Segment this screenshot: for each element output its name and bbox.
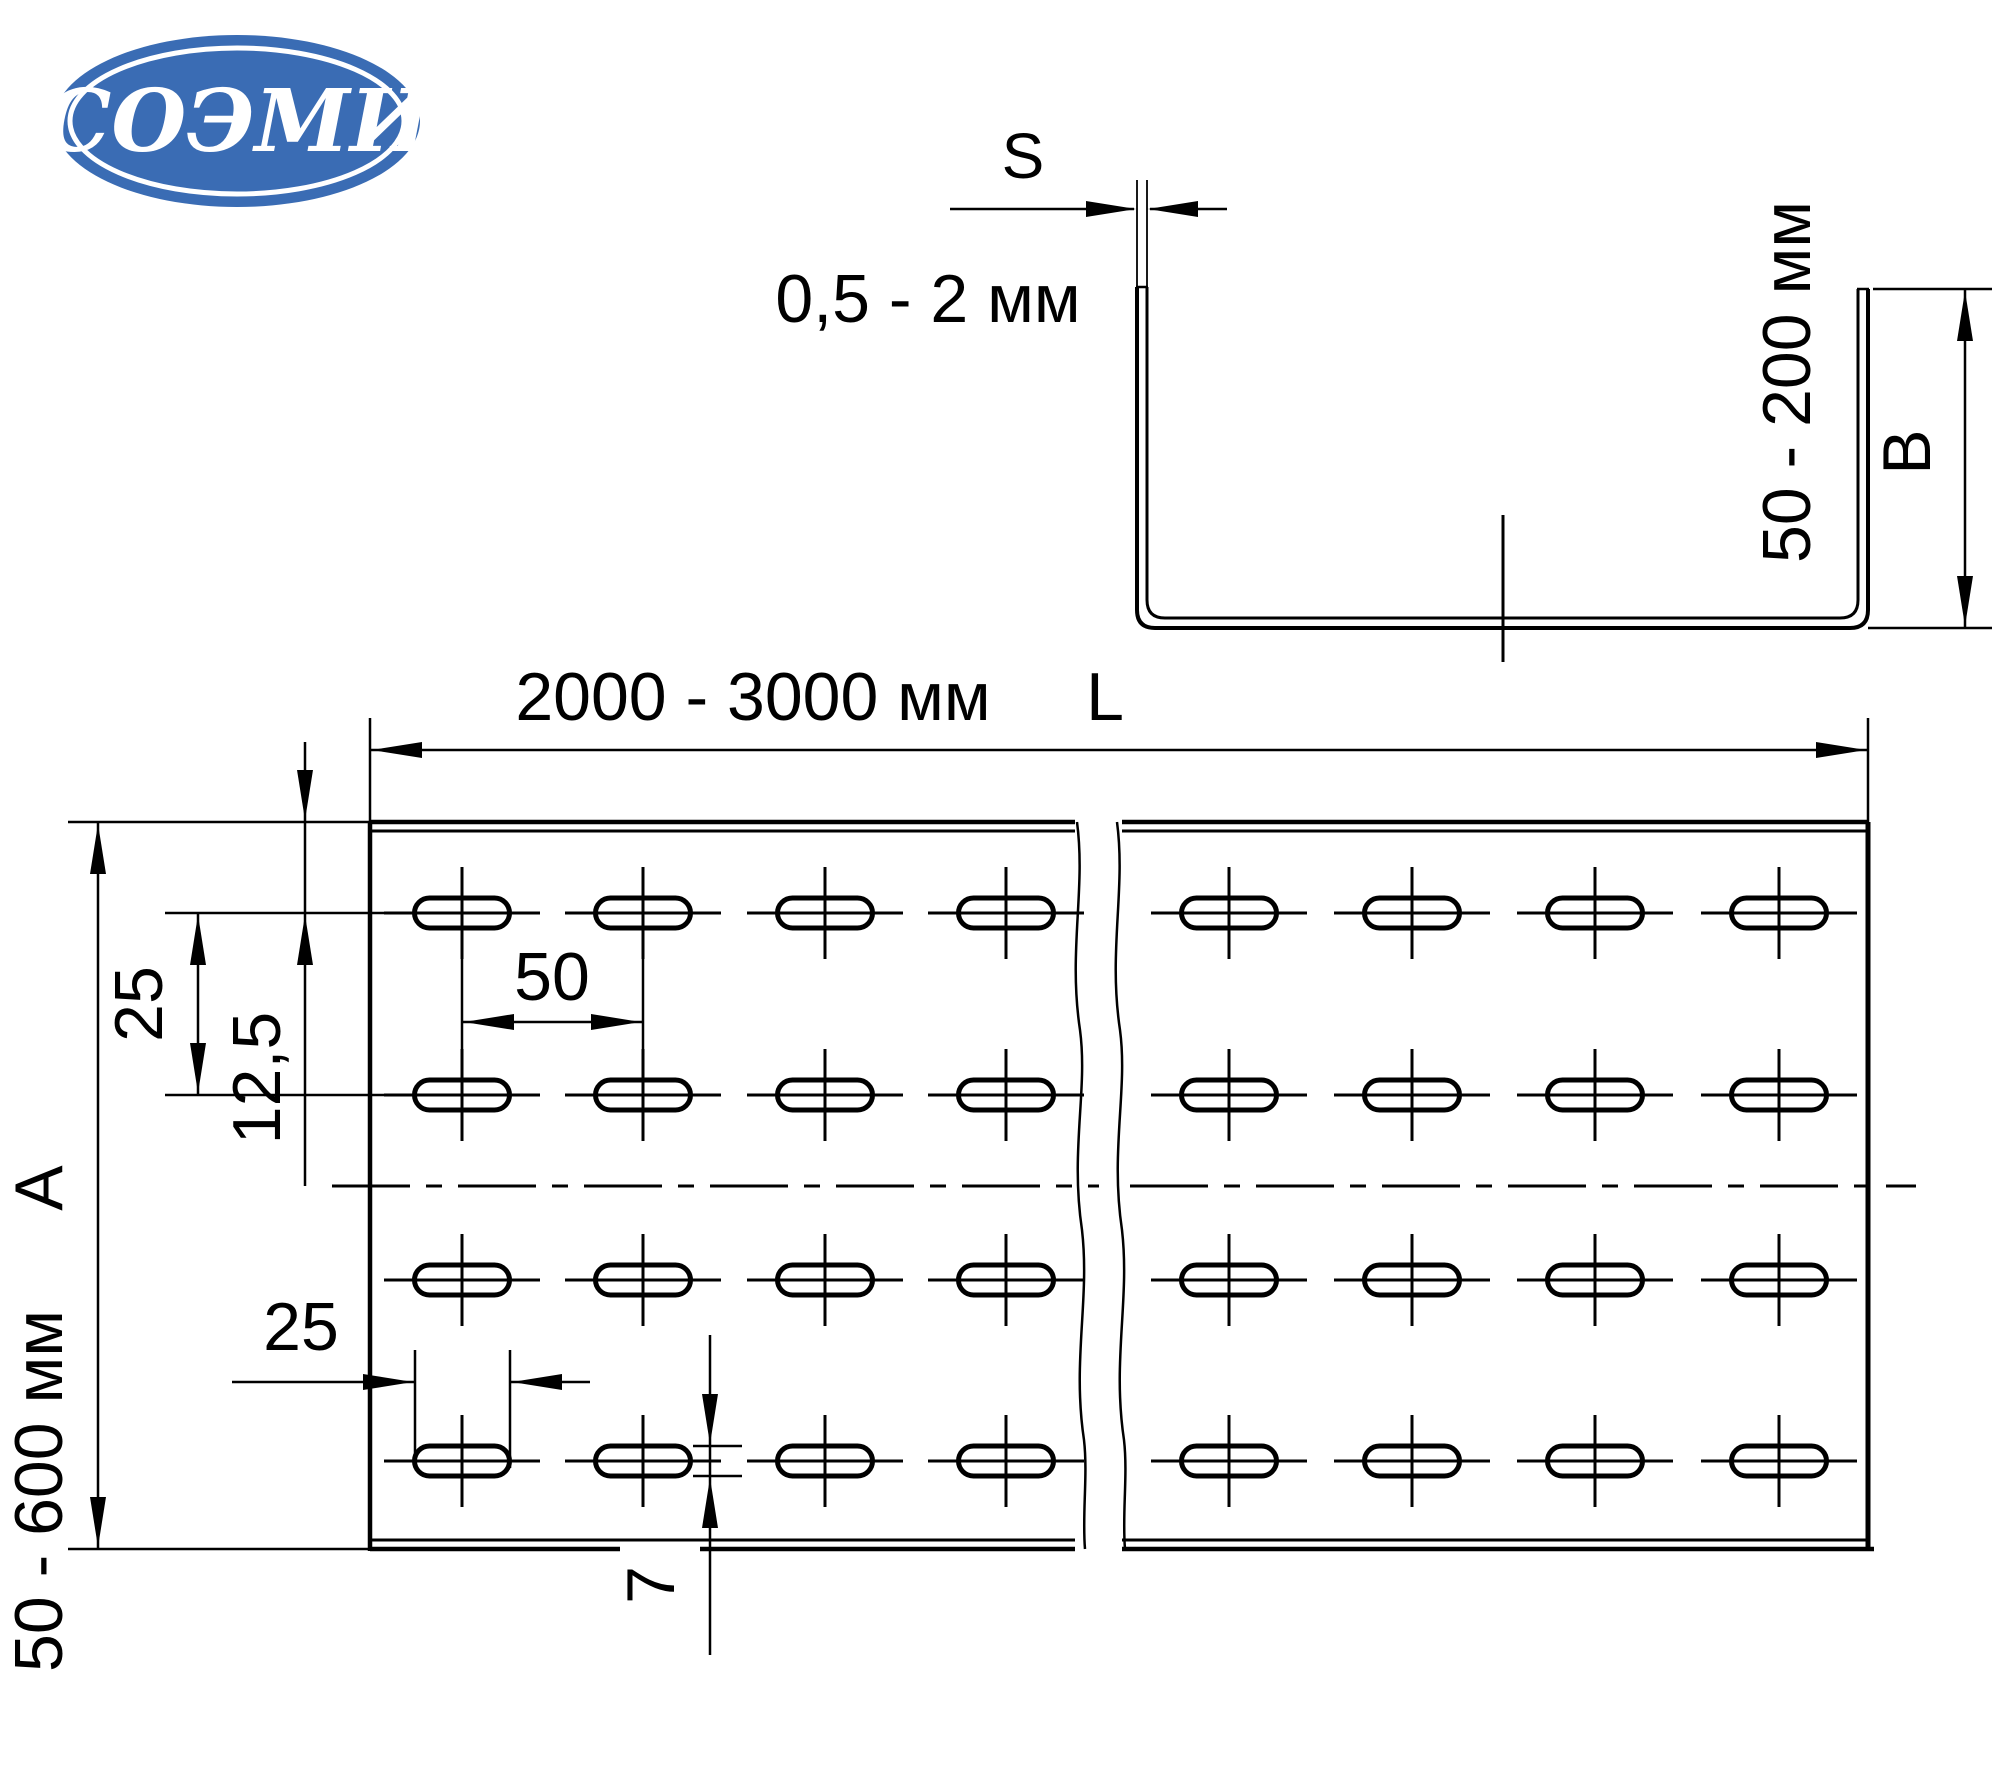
length-range-label: 2000 - 3000 мм bbox=[515, 659, 990, 735]
arrowhead-up-icon bbox=[1957, 291, 1973, 341]
slot bbox=[1334, 1234, 1490, 1326]
slot bbox=[1334, 867, 1490, 959]
slot bbox=[747, 1415, 903, 1507]
plan-view bbox=[68, 718, 1916, 1655]
slot-height-label: 7 bbox=[613, 1566, 689, 1604]
slot bbox=[1151, 1415, 1307, 1507]
slot bbox=[1151, 867, 1307, 959]
break-line-right bbox=[1116, 822, 1126, 1549]
width-range-label: 50 - 600 мм bbox=[1, 1310, 77, 1672]
slot bbox=[1151, 1049, 1307, 1141]
arrowhead-down-icon bbox=[90, 1497, 106, 1547]
slot bbox=[1334, 1415, 1490, 1507]
slot bbox=[747, 867, 903, 959]
length-letter-label: L bbox=[1086, 659, 1124, 735]
slot bbox=[1517, 1415, 1673, 1507]
arrowhead-down-icon bbox=[190, 1043, 206, 1093]
slot bbox=[1334, 1049, 1490, 1141]
slot bbox=[1151, 1234, 1307, 1326]
slot bbox=[928, 867, 1084, 959]
column-pitch-label: 50 bbox=[514, 939, 590, 1015]
break-line-left bbox=[1076, 822, 1086, 1549]
arrowhead-up-icon bbox=[90, 824, 106, 874]
arrowhead-left-icon bbox=[1148, 201, 1198, 217]
slot bbox=[1517, 1049, 1673, 1141]
arrowhead-up-icon bbox=[190, 915, 206, 965]
row-pitch-label: 25 bbox=[101, 966, 177, 1042]
wall-thickness-range: 0,5 - 2 мм bbox=[775, 261, 1080, 337]
slot bbox=[565, 1415, 721, 1507]
slot bbox=[1701, 1049, 1857, 1141]
company-logo: СОЭМИ bbox=[43, 35, 434, 207]
arrowhead-left-icon bbox=[372, 742, 422, 758]
profile-height-letter: B bbox=[1869, 429, 1945, 474]
arrowhead-left-icon bbox=[464, 1014, 514, 1030]
slot bbox=[747, 1234, 903, 1326]
slot bbox=[1517, 1234, 1673, 1326]
slot bbox=[928, 1415, 1084, 1507]
logo-text: СОЭМИ bbox=[43, 71, 434, 172]
arrowhead-up-icon bbox=[702, 1478, 718, 1528]
dimension-edge-offset bbox=[297, 742, 313, 1186]
slot bbox=[1517, 867, 1673, 959]
width-letter-label: A bbox=[1, 1165, 77, 1211]
profile-height-range: 50 - 200 мм bbox=[1749, 201, 1825, 563]
arrowhead-up-icon bbox=[297, 915, 313, 965]
slot bbox=[384, 1234, 540, 1326]
technical-drawing: СОЭМИ S 0,5 - 2 мм 50 - 200 м bbox=[0, 0, 2000, 1771]
slot bbox=[384, 1415, 540, 1507]
slot bbox=[565, 1234, 721, 1326]
slot bbox=[928, 1049, 1084, 1141]
arrowhead-left-icon bbox=[512, 1374, 562, 1390]
slot bbox=[1701, 1415, 1857, 1507]
arrowhead-right-icon bbox=[591, 1014, 641, 1030]
dimension-width bbox=[68, 822, 370, 1549]
slot bbox=[928, 1234, 1084, 1326]
drawing-page: СОЭМИ S 0,5 - 2 мм 50 - 200 м bbox=[0, 0, 2000, 1771]
dimension-slot-length bbox=[232, 1350, 590, 1468]
slot-length-label: 25 bbox=[263, 1289, 339, 1365]
arrowhead-right-icon bbox=[1086, 201, 1136, 217]
arrowhead-down-icon bbox=[297, 770, 313, 820]
arrowhead-right-icon bbox=[363, 1374, 413, 1390]
arrowhead-down-icon bbox=[1957, 576, 1973, 626]
arrowhead-down-icon bbox=[702, 1394, 718, 1444]
dimension-wall-thickness bbox=[950, 201, 1227, 217]
arrowhead-right-icon bbox=[1816, 742, 1866, 758]
edge-offset-label: 12,5 bbox=[219, 1012, 295, 1144]
slot bbox=[1701, 1234, 1857, 1326]
slot bbox=[747, 1049, 903, 1141]
dimension-slot-height bbox=[693, 1335, 742, 1655]
profile-section-view bbox=[950, 180, 1992, 662]
slot bbox=[1701, 867, 1857, 959]
wall-thickness-letter: S bbox=[1002, 120, 1045, 192]
